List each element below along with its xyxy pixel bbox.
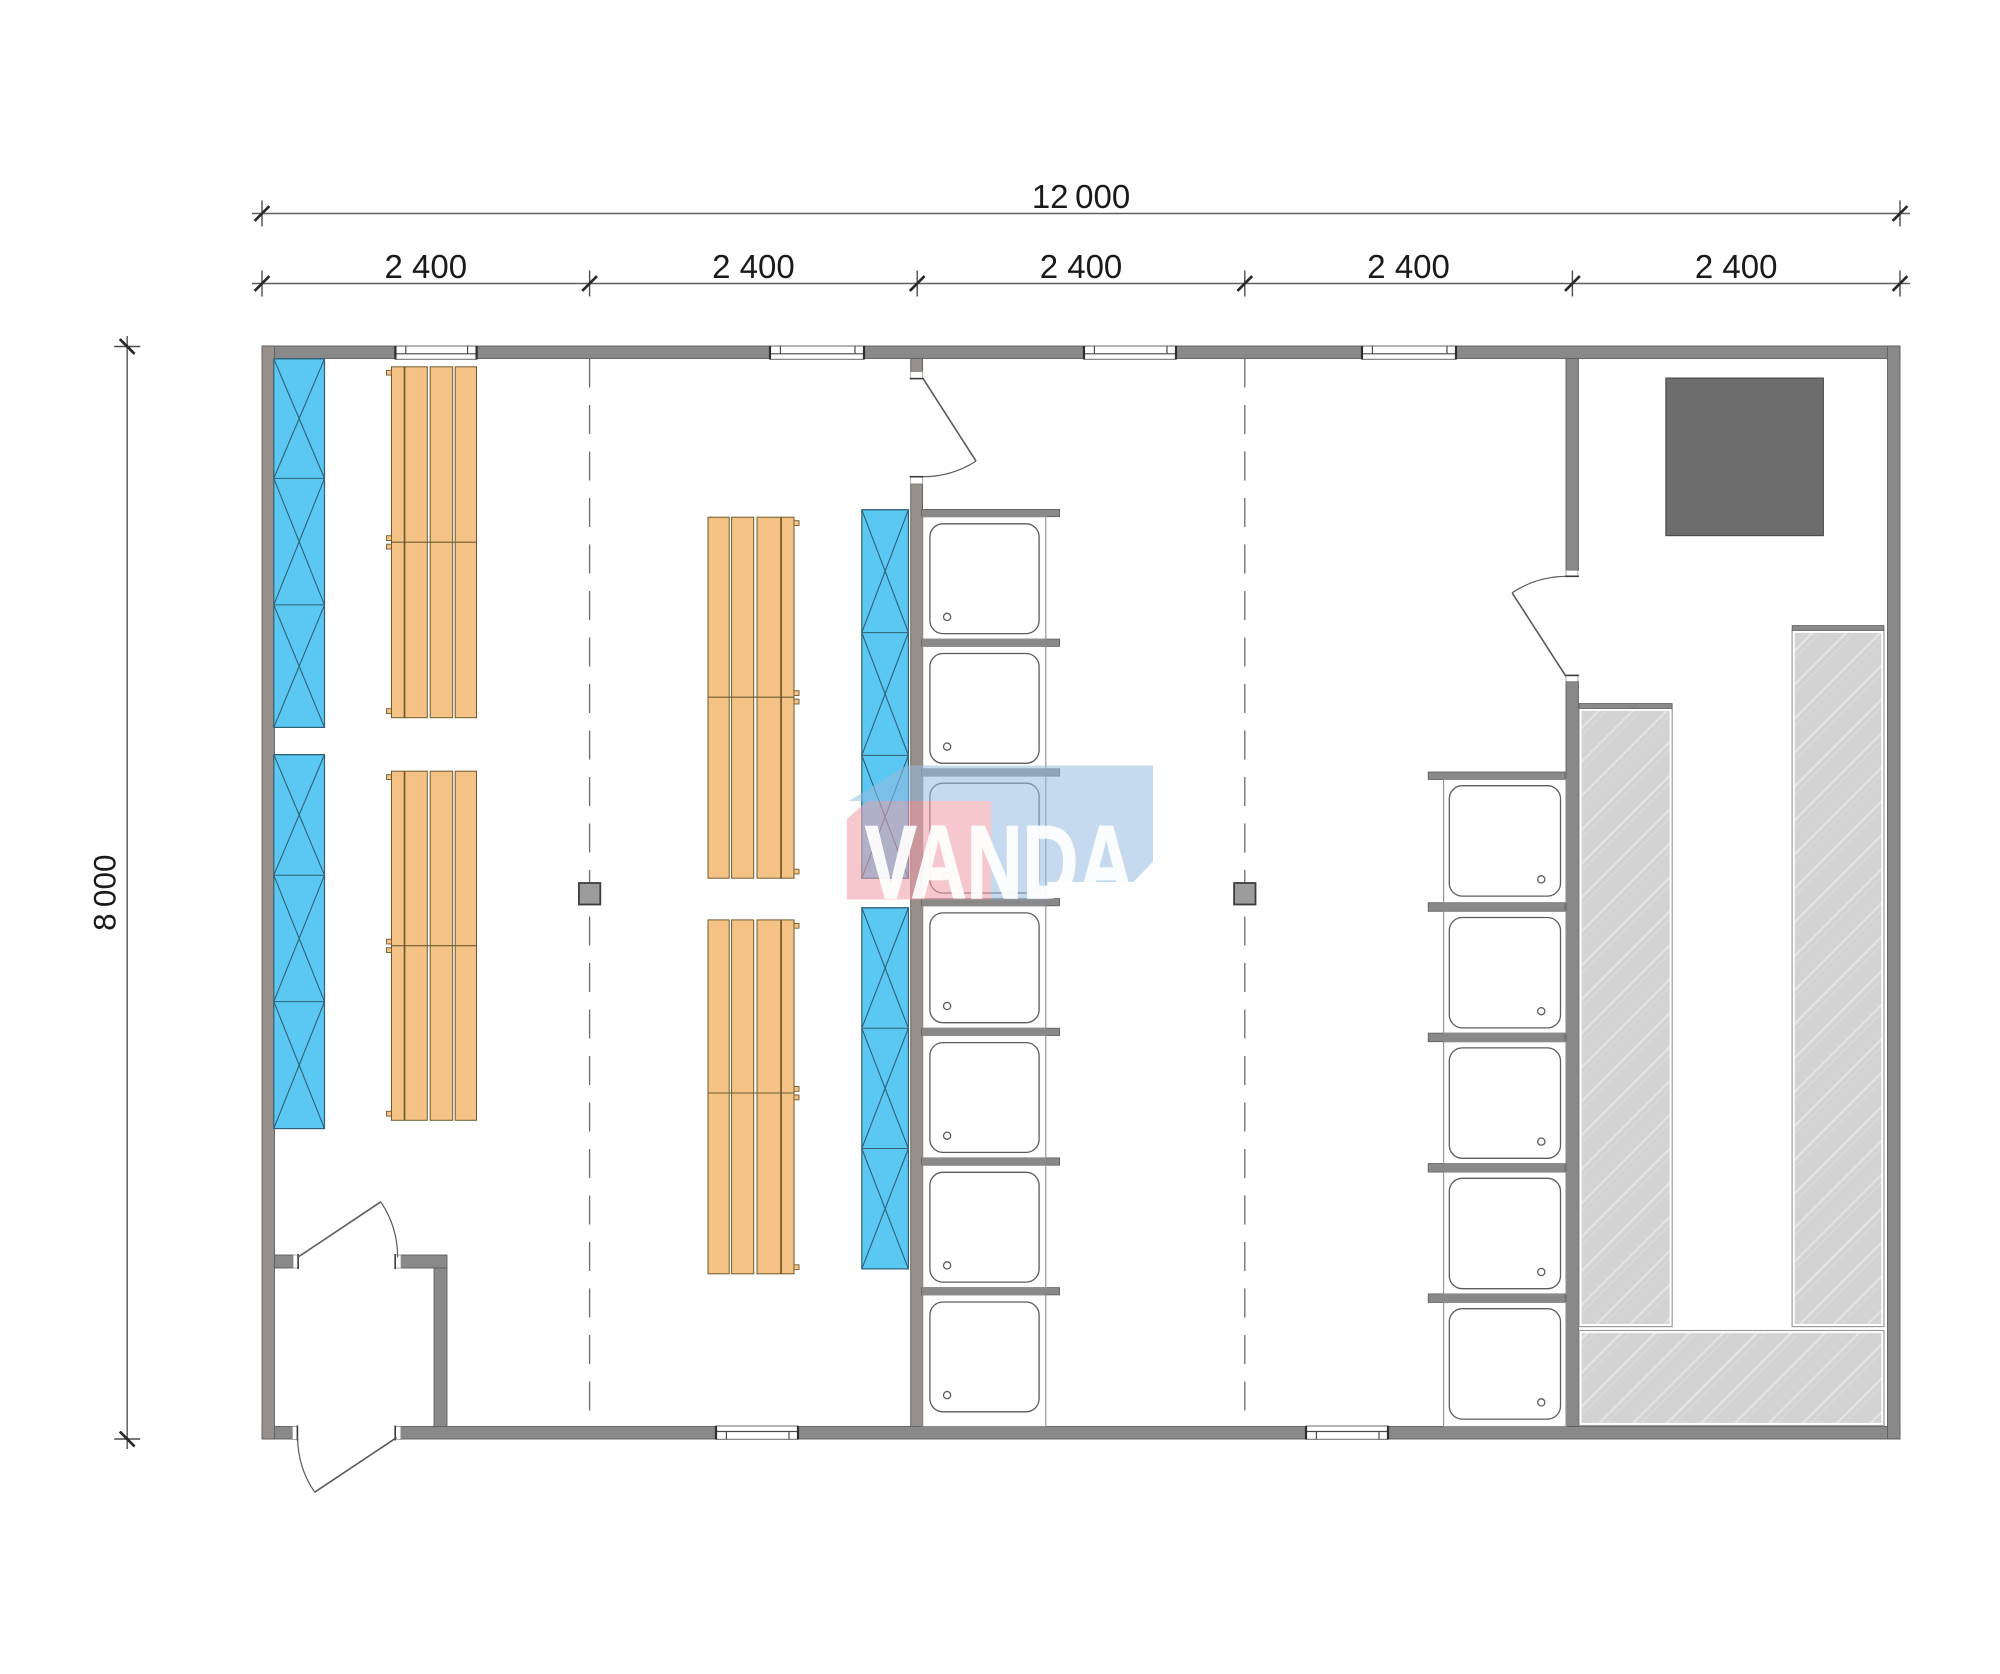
- svg-text:8 000: 8 000: [87, 855, 123, 931]
- svg-text:12 000: 12 000: [1032, 178, 1130, 215]
- svg-text:2 400: 2 400: [1040, 248, 1123, 285]
- svg-text:2 400: 2 400: [1367, 248, 1450, 285]
- svg-text:VANDA: VANDA: [865, 805, 1134, 921]
- svg-text:2 400: 2 400: [712, 248, 795, 285]
- svg-text:2 400: 2 400: [1695, 248, 1778, 285]
- svg-text:2 400: 2 400: [385, 248, 468, 285]
